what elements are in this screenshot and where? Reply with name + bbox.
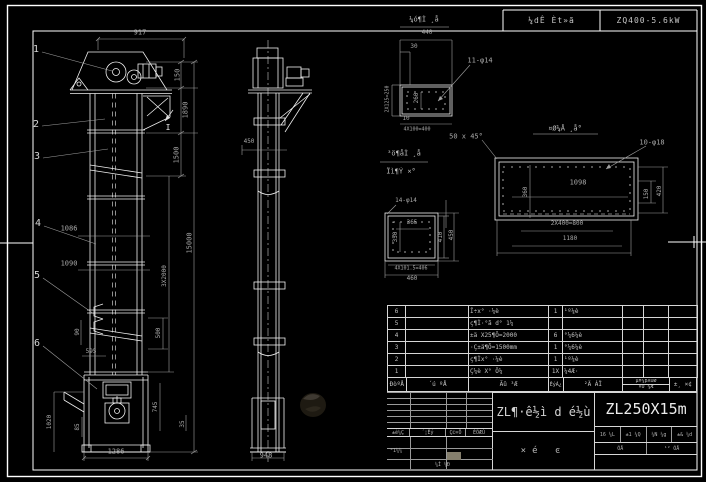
title-block-center: ZL¶·ê½ì d é½ù ×é ͼ bbox=[493, 392, 595, 470]
bom-cell bbox=[669, 306, 698, 318]
strip-left-cell: ¼dÊ Èt»ã bbox=[503, 10, 600, 31]
revision-header-row: ±ê¼Ç´¦ÊýÇ©×ÖÈÕÆÚ bbox=[387, 428, 492, 437]
front-view-dimensions bbox=[42, 37, 198, 461]
bom-header-name: Ãû ³Æ bbox=[468, 378, 547, 392]
bom-row: 6Î÷x° ·¼è1¹º¼è bbox=[388, 306, 698, 318]
bom-cell: Ç¼è X° Ö¼ bbox=[469, 366, 549, 378]
bom-cell: ç¶Ì·°ã d° 1¼ bbox=[469, 318, 549, 330]
bom-cell: 1 bbox=[388, 366, 406, 378]
grid-line bbox=[387, 459, 493, 460]
detail-right-dimensions bbox=[446, 134, 668, 256]
bom-cell: 1 bbox=[549, 354, 563, 366]
side-view-dimensions bbox=[242, 145, 287, 461]
detail-right-linework bbox=[495, 158, 638, 220]
bom-row: 4±ä X25¶Õ=20006°¼6¼è bbox=[388, 330, 698, 342]
bom-cell bbox=[623, 354, 644, 366]
bom-cell bbox=[623, 366, 644, 378]
title-block-right: ZL250X15m 16 ¼L±1 ¼Q¼N ¼g±& ¼d ÕÅ¹² ÕÅ bbox=[595, 392, 697, 470]
bom-cell bbox=[406, 342, 469, 354]
bom-cell bbox=[669, 354, 698, 366]
check-label: ¼Ì ¼Ð bbox=[435, 463, 450, 468]
bom-row: 5ç¶Ì·°ã d° 1¼ bbox=[388, 318, 698, 330]
detail-top-dimensions bbox=[392, 27, 470, 124]
bom-cell bbox=[549, 318, 563, 330]
sheet-count-row: ÕÅ¹² ÕÅ bbox=[595, 443, 697, 455]
cell: ¼N ¼g bbox=[647, 427, 673, 442]
signature-area: °1¼¼ ¼Ì ¼Ð bbox=[387, 437, 492, 469]
cell: ÕÅ bbox=[595, 443, 647, 454]
scale-weight-row: 16 ¼L±1 ¼Q¼N ¼g±& ¼d bbox=[595, 427, 697, 443]
bom-header-weight-bottom: ×Ü ¼Æ bbox=[623, 385, 668, 390]
bom-cell: 1 bbox=[549, 342, 563, 354]
cell: ±1 ¼Q bbox=[621, 427, 647, 442]
detail-bottom-linework bbox=[385, 213, 438, 261]
bom-cell bbox=[644, 342, 669, 354]
bom-cell: 3 bbox=[388, 342, 406, 354]
cell: ´¦Êý bbox=[410, 429, 446, 436]
grid-line bbox=[410, 437, 411, 469]
bom-rows: 6Î÷x° ·¼è1¹º¼è5ç¶Ì·°ã d° 1¼4±ä X25¶Õ=200… bbox=[387, 305, 698, 378]
bom-row: 3·Ç±ä¶Õ=1500mm1°¼6¼è bbox=[388, 342, 698, 354]
bom-cell: 2 bbox=[388, 354, 406, 366]
bom-cell: 4 bbox=[388, 330, 406, 342]
cell: 16 ¼L bbox=[595, 427, 621, 442]
bom-cell bbox=[669, 342, 698, 354]
bom-header-seq: ÐòºÅ bbox=[387, 378, 406, 392]
bom-header-code: ´ú ºÅ bbox=[406, 378, 469, 392]
bom-cell bbox=[669, 366, 698, 378]
bom-header-qty: ÊýÁ¿ bbox=[548, 378, 563, 392]
drawing-subtitle: ×é ͼ bbox=[493, 432, 594, 470]
bom-cell: ç¶Ìx° ·¼è bbox=[469, 354, 549, 366]
cell: Ç©×Ö bbox=[446, 429, 466, 436]
bom-cell bbox=[623, 342, 644, 354]
bom-table: 6Î÷x° ·¼è1¹º¼è5ç¶Ì·°ã d° 1¼4±ä X25¶Õ=200… bbox=[387, 305, 697, 392]
grid-line bbox=[446, 392, 447, 428]
bom-header: ÐòºÅ ´ú ºÅ Ãû ³Æ ÊýÁ¿ ²Ä ÁÏ µ¥¼þXÖØ ×Ü ¼… bbox=[387, 378, 697, 393]
bom-cell bbox=[644, 306, 669, 318]
bom-cell bbox=[644, 330, 669, 342]
bom-cell: °¼6¼è bbox=[563, 330, 623, 342]
model-number: ZL250X15m bbox=[595, 392, 697, 427]
bom-cell bbox=[623, 306, 644, 318]
bom-cell: 1 bbox=[549, 306, 563, 318]
bom-cell bbox=[563, 318, 623, 330]
bom-cell bbox=[644, 366, 669, 378]
bom-cell: ¹º¼è bbox=[563, 354, 623, 366]
bom-cell bbox=[406, 366, 469, 378]
grid-line bbox=[466, 392, 467, 428]
bom-cell: ·Ç±ä¶Õ=1500mm bbox=[469, 342, 549, 354]
bom-cell bbox=[644, 318, 669, 330]
bom-cell: 1X bbox=[549, 366, 563, 378]
strip-model-cell: ZQ400-5.6kW bbox=[600, 10, 697, 31]
bom-cell: 5 bbox=[388, 318, 406, 330]
bom-cell bbox=[623, 330, 644, 342]
bom-cell: ¹º¼è bbox=[563, 306, 623, 318]
cell: ±ê¼Ç bbox=[387, 429, 410, 436]
bom-cell bbox=[644, 354, 669, 366]
cell: ¹² ÕÅ bbox=[647, 443, 698, 454]
bom-header-note: ±¸ ×¢ bbox=[669, 378, 697, 392]
bom-cell bbox=[406, 318, 469, 330]
bom-row: 1Ç¼è X° Ö¼1X¼4Æ· bbox=[388, 366, 698, 378]
bom-cell bbox=[623, 318, 644, 330]
bom-cell bbox=[669, 330, 698, 342]
bom-header-material: ²Ä ÁÏ bbox=[563, 378, 623, 392]
cell: ÈÕÆÚ bbox=[466, 429, 492, 436]
drawing-title: ZL¶·ê½ì d é½ù bbox=[493, 392, 594, 432]
grid-line bbox=[387, 448, 493, 449]
bom-cell bbox=[406, 354, 469, 366]
bom-cell bbox=[669, 318, 698, 330]
revision-grid bbox=[387, 392, 492, 428]
bom-row: 2ç¶Ìx° ·¼è1¹º¼è bbox=[388, 354, 698, 366]
cad-drawing-canvas: ¼dÊ Èt»ã ZQ400-5.6kW 1234569171501890150… bbox=[0, 0, 706, 482]
title-block-revision-area: ±ê¼Ç´¦ÊýÇ©×ÖÈÕÆÚ °1¼¼ ¼Ì ¼Ð bbox=[387, 392, 493, 470]
title-block: ±ê¼Ç´¦ÊýÇ©×ÖÈÕÆÚ °1¼¼ ¼Ì ¼Ð ZL¶·ê½ì d é½… bbox=[387, 392, 697, 470]
grid-line bbox=[410, 392, 411, 428]
bom-cell bbox=[406, 330, 469, 342]
bom-cell: Î÷x° ·¼è bbox=[469, 306, 549, 318]
bom-cell: ±ä X25¶Õ=2000 bbox=[469, 330, 549, 342]
stamp-smudge bbox=[300, 393, 326, 417]
detail-top-linework bbox=[400, 85, 452, 116]
bom-header-weight: µ¥¼þXÖØ ×Ü ¼Æ bbox=[622, 378, 668, 392]
bom-cell bbox=[406, 306, 469, 318]
approval-stamp bbox=[447, 452, 461, 460]
bom-cell: ¼4Æ· bbox=[563, 366, 623, 378]
bom-cell: °¼6¼è bbox=[563, 342, 623, 354]
bom-cell: 6 bbox=[388, 306, 406, 318]
bom-cell: 6 bbox=[549, 330, 563, 342]
design-label: °1¼¼ bbox=[390, 449, 402, 454]
cell: ±& ¼d bbox=[672, 427, 697, 442]
